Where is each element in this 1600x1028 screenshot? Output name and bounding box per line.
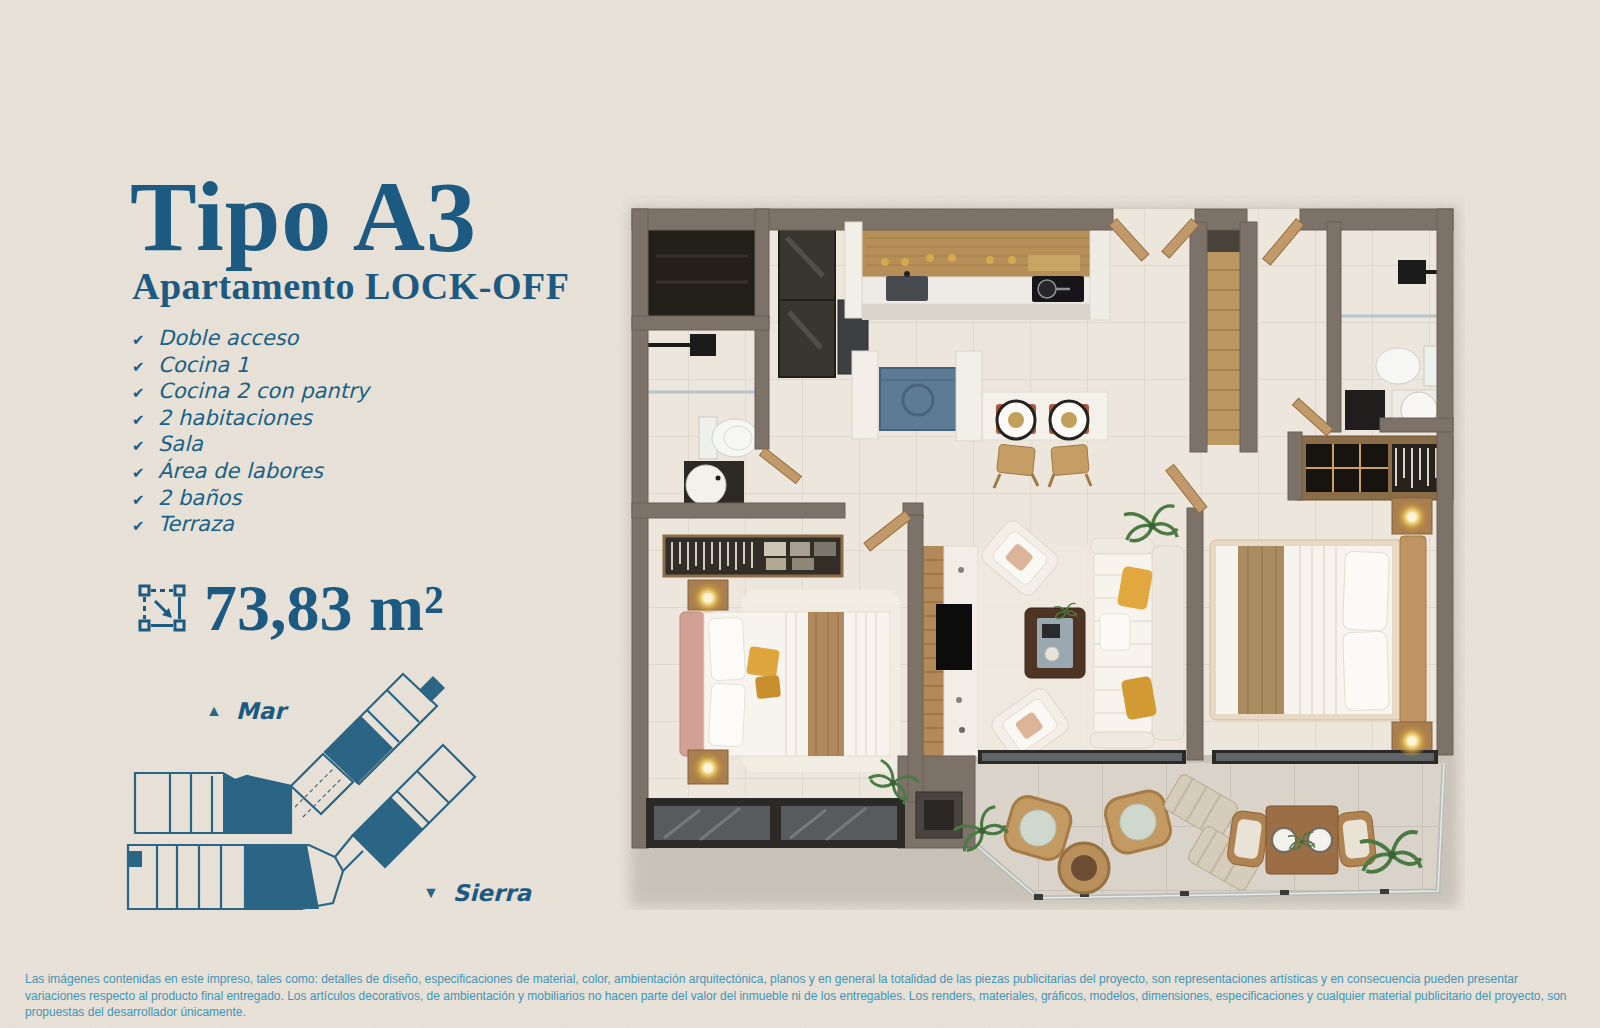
- feature-label: 2 baños: [158, 486, 241, 510]
- page-subtitle: Apartamento LOCK-OFF: [132, 264, 569, 308]
- feature-item: ✔Doble acceso: [132, 326, 369, 353]
- area-value: 73,83 m²: [204, 570, 444, 646]
- feature-label: Terraza: [158, 512, 234, 536]
- measure-area-icon: [138, 584, 186, 632]
- feature-item: ✔Cocina 2 con pantry: [132, 379, 369, 406]
- pantry-hall: [1205, 222, 1243, 445]
- feature-item: ✔Terraza: [132, 512, 369, 539]
- closet-2: [1298, 436, 1453, 500]
- feature-item: ✔Sala: [132, 432, 369, 459]
- feature-item: ✔Área de labores: [132, 459, 369, 486]
- apartment-3d-floorplan-render: [620, 195, 1465, 910]
- feature-item: ✔2 habitaciones: [132, 406, 369, 433]
- triangle-down-icon: ▼: [423, 884, 439, 902]
- brochure-page: Tipo A3 Apartamento LOCK-OFF ✔Doble acce…: [0, 0, 1600, 1028]
- feature-label: Área de labores: [158, 459, 323, 483]
- area-row: 73,83 m²: [138, 570, 444, 646]
- check-icon: ✔: [132, 491, 158, 509]
- feature-label: Cocina 1: [158, 353, 249, 377]
- feature-item: ✔2 baños: [132, 486, 369, 513]
- check-icon: ✔: [132, 384, 158, 402]
- check-icon: ✔: [132, 411, 158, 429]
- mountain-direction-label: Sierra: [453, 880, 531, 906]
- check-icon: ✔: [132, 358, 158, 376]
- disclaimer-text: Las imágenes contenidas en este impreso,…: [25, 971, 1577, 1021]
- mountain-direction: ▼ Sierra: [423, 880, 531, 906]
- page-title: Tipo A3: [130, 167, 477, 267]
- closet: [648, 230, 755, 316]
- triangle-up-icon: ▲: [206, 702, 222, 720]
- tv-wall: [918, 546, 978, 756]
- entry: [779, 225, 835, 377]
- feature-item: ✔Cocina 1: [132, 353, 369, 380]
- check-icon: ✔: [132, 464, 158, 482]
- feature-label: Sala: [158, 432, 203, 456]
- feature-label: 2 habitaciones: [158, 406, 312, 430]
- feature-label: Doble acceso: [158, 326, 298, 350]
- check-icon: ✔: [132, 517, 158, 535]
- feature-list: ✔Doble acceso ✔Cocina 1 ✔Cocina 2 con pa…: [132, 326, 369, 539]
- laundry-nook: [880, 368, 956, 430]
- check-icon: ✔: [132, 331, 158, 349]
- feature-label: Cocina 2 con pantry: [158, 379, 369, 403]
- sea-direction: ▲ Mar: [206, 698, 286, 724]
- check-icon: ✔: [132, 437, 158, 455]
- living-room: [978, 517, 1184, 765]
- sea-direction-label: Mar: [236, 698, 286, 724]
